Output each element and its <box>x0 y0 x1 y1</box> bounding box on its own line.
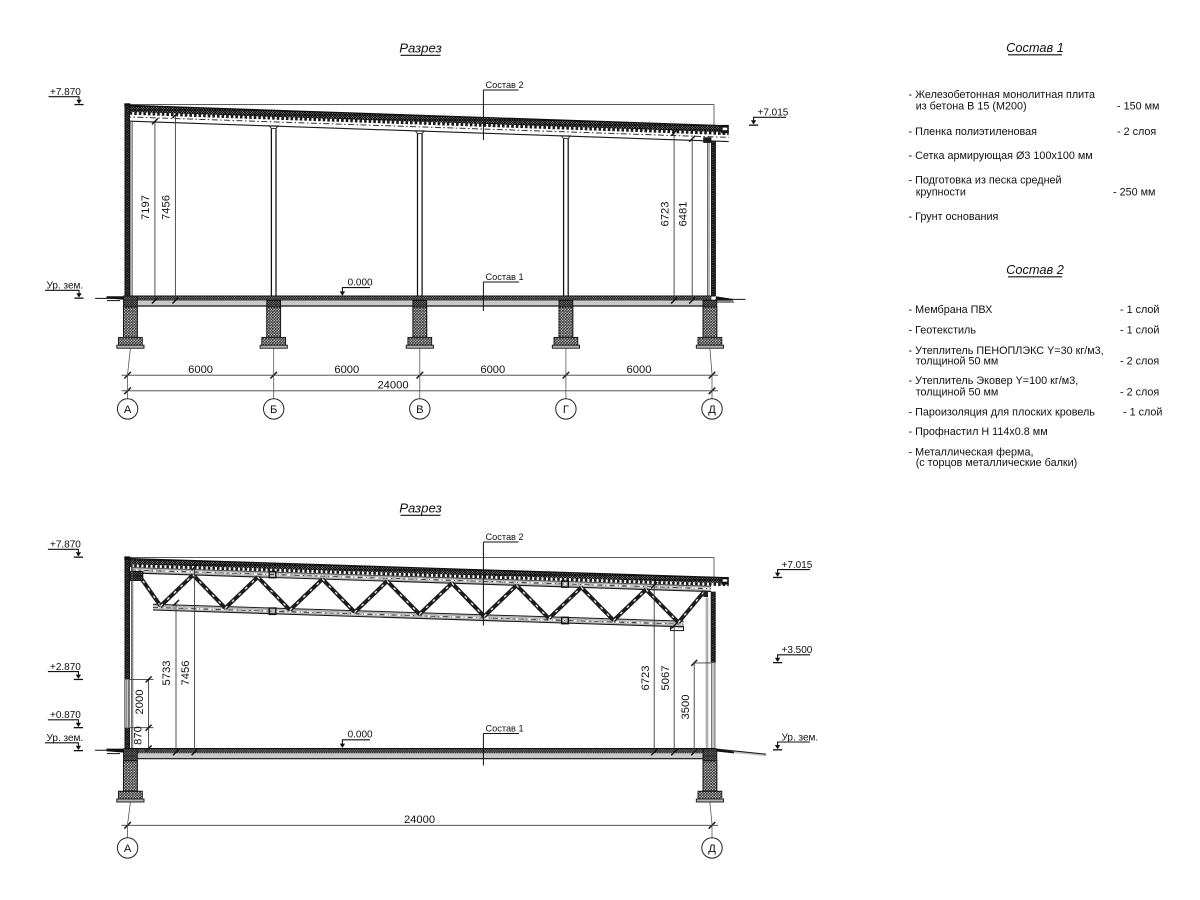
svg-text:В: В <box>416 404 423 416</box>
svg-text:Ур. зем.: Ур. зем. <box>782 732 819 743</box>
svg-text:Д: Д <box>708 843 716 855</box>
svg-text:+7.870: +7.870 <box>50 87 81 98</box>
svg-text:Состав 1: Состав 1 <box>486 272 524 282</box>
svg-text:- Грунт основания: - Грунт основания <box>909 211 999 223</box>
svg-text:5067: 5067 <box>660 666 672 691</box>
svg-text:- Геотекстиль: - Геотекстиль <box>909 325 977 337</box>
svg-text:- 2 слоя: - 2 слоя <box>1117 126 1156 138</box>
svg-text:870: 870 <box>133 726 145 745</box>
svg-text:- Железобетонная монолитная п: - Железобетонная монолитная плита <box>909 89 1096 101</box>
svg-text:+7.015: +7.015 <box>758 108 789 119</box>
svg-text:- Профнастил Н 114х0.8 мм: - Профнастил Н 114х0.8 мм <box>909 426 1048 438</box>
svg-text:(с торцов металлические балки): (с торцов металлические балки) <box>916 457 1078 469</box>
svg-text:Состав 2: Состав 2 <box>1006 262 1064 277</box>
svg-text:Состав 2: Состав 2 <box>486 532 524 542</box>
svg-text:+2.870: +2.870 <box>50 662 81 673</box>
svg-text:- 1 слой: - 1 слой <box>1120 325 1159 337</box>
svg-text:Г: Г <box>563 404 569 416</box>
svg-text:+7.870: +7.870 <box>50 540 81 551</box>
svg-text:толщиной 50 мм: толщиной 50 мм <box>916 386 999 398</box>
svg-text:Состав 1: Состав 1 <box>1006 40 1064 55</box>
svg-text:+0.870: +0.870 <box>50 710 81 721</box>
svg-text:+3.500: +3.500 <box>782 645 813 656</box>
svg-text:толщиной 50 мм: толщиной 50 мм <box>916 356 999 368</box>
svg-text:24000: 24000 <box>404 814 435 826</box>
svg-text:+7.015: +7.015 <box>782 560 813 571</box>
svg-text:3500: 3500 <box>680 695 692 720</box>
svg-text:- Утеплитель Эковер Y=100 кг/м: - Утеплитель Эковер Y=100 кг/м3, <box>909 375 1079 387</box>
svg-text:- 150 мм: - 150 мм <box>1117 100 1159 112</box>
svg-text:- Пароизоляция для плоских кро: - Пароизоляция для плоских кровель <box>909 406 1096 418</box>
svg-text:6723: 6723 <box>659 202 671 227</box>
svg-text:Состав 2: Состав 2 <box>486 80 524 90</box>
svg-text:крупности: крупности <box>916 186 966 198</box>
svg-text:- 250 мм: - 250 мм <box>1113 186 1155 198</box>
svg-text:Ур. зем.: Ур. зем. <box>47 733 84 744</box>
svg-text:Д: Д <box>708 404 716 416</box>
svg-text:- Пленка полиэтиленовая: - Пленка полиэтиленовая <box>909 126 1038 138</box>
svg-text:0.000: 0.000 <box>348 730 373 741</box>
svg-text:24000: 24000 <box>377 380 408 392</box>
svg-text:0.000: 0.000 <box>348 277 373 288</box>
svg-text:6481: 6481 <box>677 202 689 227</box>
svg-text:2000: 2000 <box>134 690 146 715</box>
svg-text:- 2 слоя: - 2 слоя <box>1120 356 1159 368</box>
svg-text:Б: Б <box>270 404 277 416</box>
svg-text:А: А <box>124 404 132 416</box>
svg-text:Состав 1: Состав 1 <box>486 724 524 734</box>
svg-text:Ур. зем.: Ур. зем. <box>47 281 84 292</box>
svg-text:6000: 6000 <box>334 364 359 376</box>
svg-text:А: А <box>124 843 132 855</box>
svg-text:- Сетка армирующая Ø3 100х100: - Сетка армирующая Ø3 100х100 мм <box>909 150 1093 162</box>
svg-text:- 2 слоя: - 2 слоя <box>1120 386 1159 398</box>
svg-text:- Подготовка из песка средней: - Подготовка из песка средней <box>909 174 1062 186</box>
svg-text:- Мембрана ПВХ: - Мембрана ПВХ <box>909 304 993 316</box>
svg-text:7197: 7197 <box>140 195 152 220</box>
svg-text:- 1 слой: - 1 слой <box>1120 304 1159 316</box>
svg-text:из бетона В 15 (М200): из бетона В 15 (М200) <box>916 100 1027 112</box>
svg-text:5733: 5733 <box>161 661 173 686</box>
svg-text:7456: 7456 <box>180 661 192 686</box>
svg-text:7456: 7456 <box>161 195 173 220</box>
svg-text:6723: 6723 <box>640 666 652 691</box>
svg-text:- 1 слой: - 1 слой <box>1123 406 1162 418</box>
svg-text:6000: 6000 <box>188 364 213 376</box>
svg-text:Разрез: Разрез <box>399 501 442 516</box>
svg-text:Разрез: Разрез <box>399 41 442 56</box>
svg-text:6000: 6000 <box>627 364 652 376</box>
svg-text:6000: 6000 <box>480 364 505 376</box>
